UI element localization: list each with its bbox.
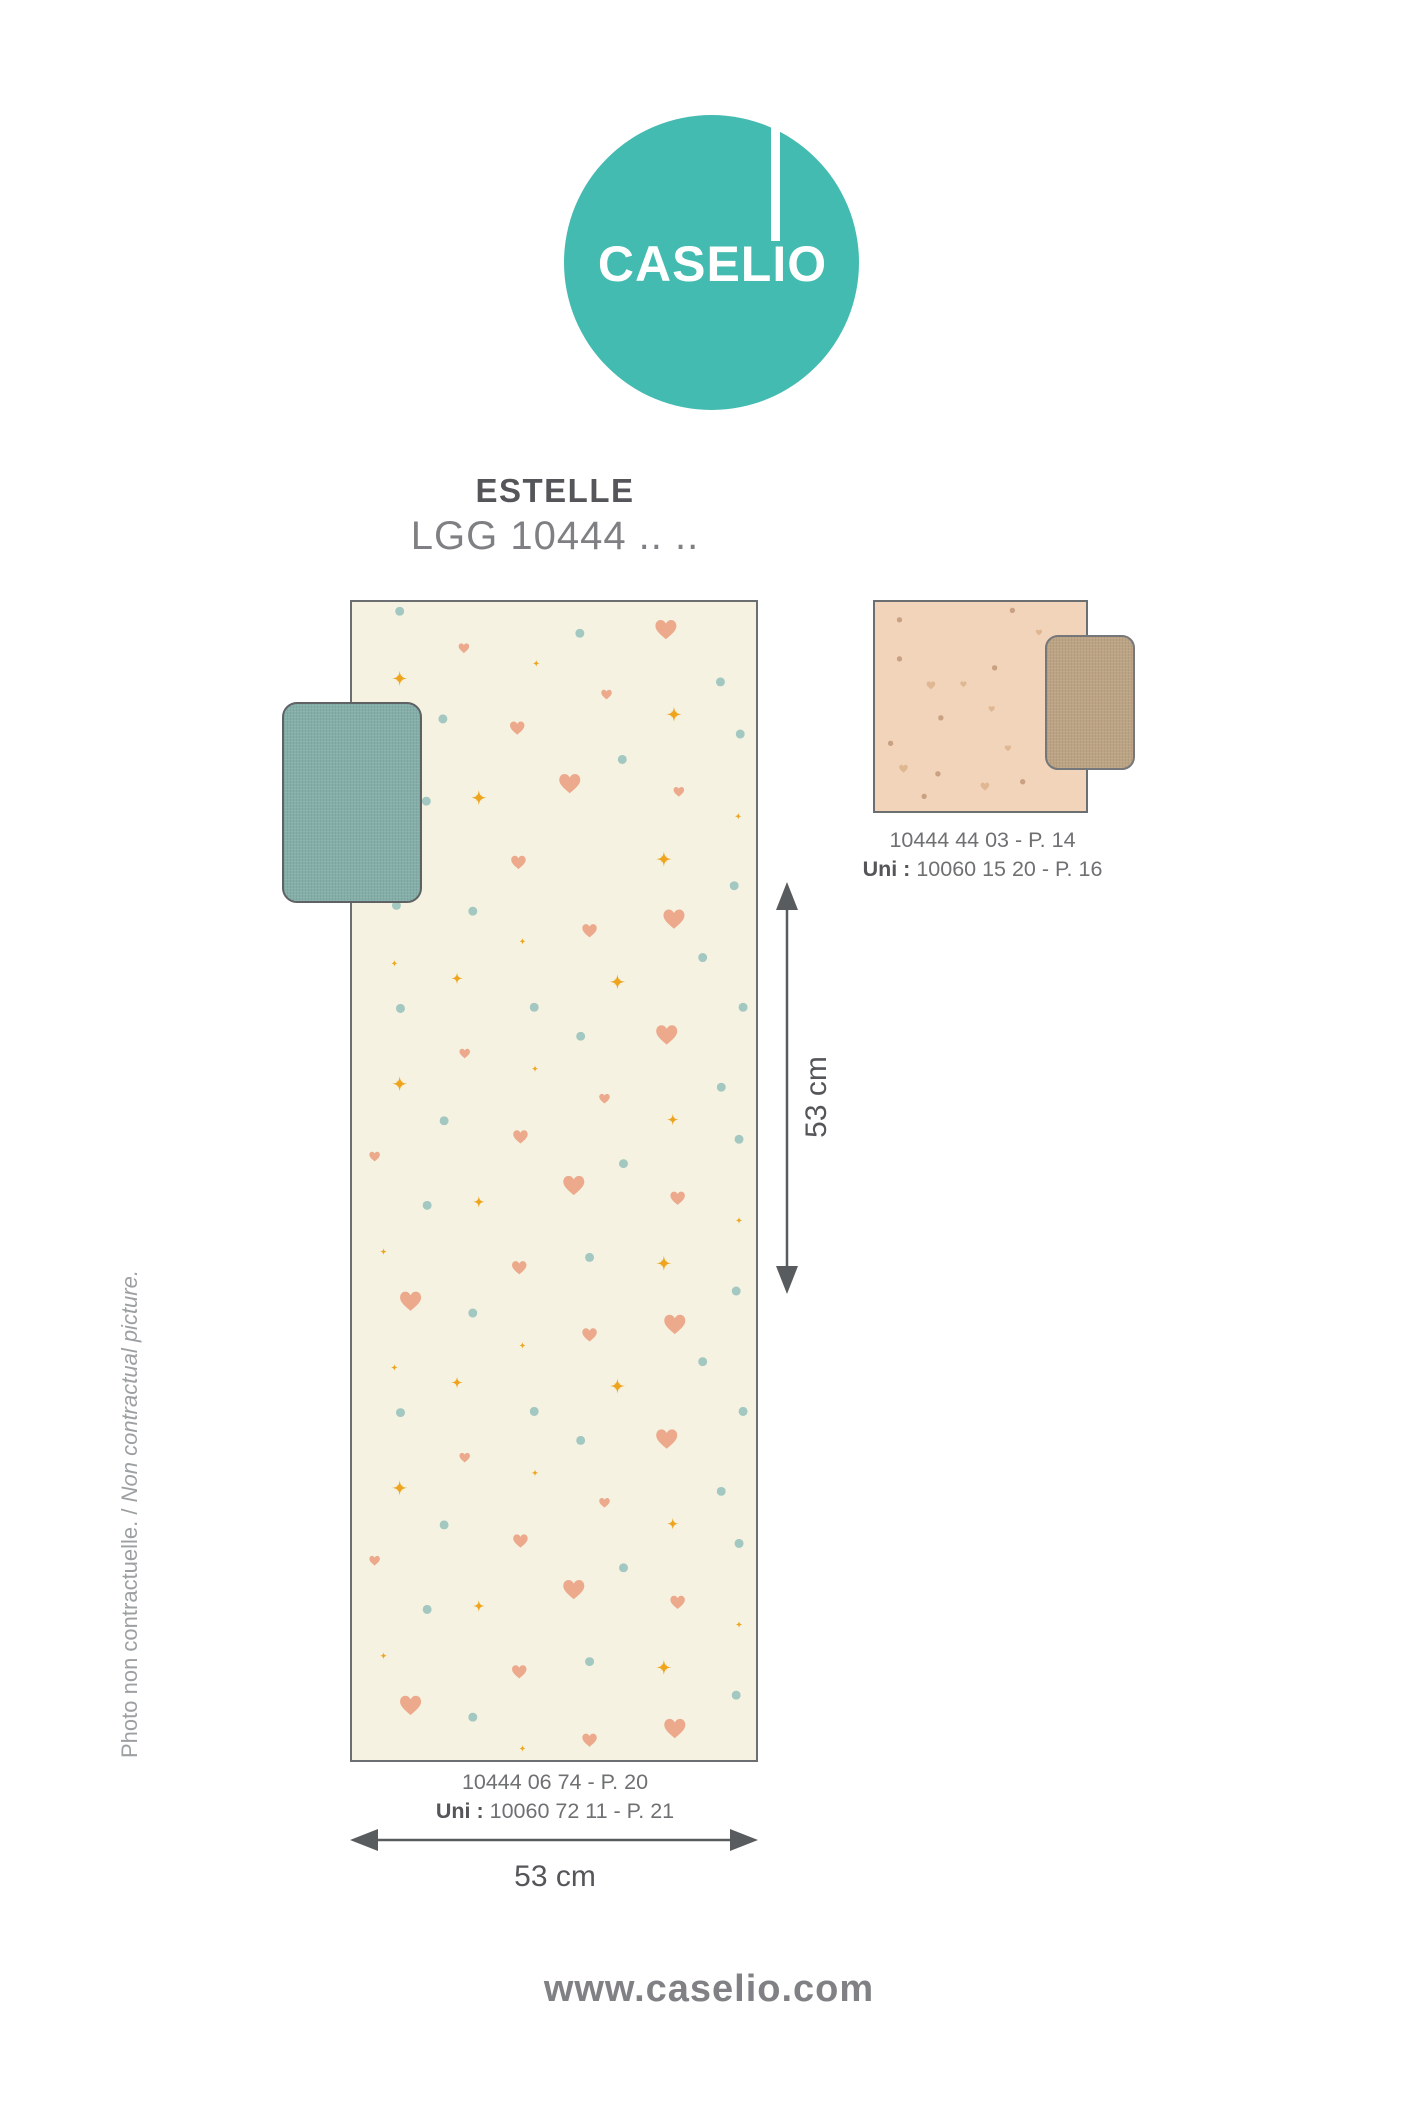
uni-value: 10060 72 11 - P. 21 (484, 1799, 674, 1823)
brand-wordmark: CASELIO (460, 239, 965, 289)
height-dimension-label: 53 cm (802, 1042, 832, 1152)
width-dimension-arrow (344, 1824, 764, 1856)
catalog-page: CASELIO ESTELLE LGG 10444 .. .. 10444 44… (0, 0, 1417, 2126)
uni-swatch-teal (282, 702, 422, 903)
note-fr: Photo non contractuelle. / (117, 1502, 142, 1758)
non-contractual-note: Photo non contractuelle. / Non contractu… (116, 1183, 144, 1758)
width-dimension-label: 53 cm (350, 1862, 760, 1892)
uni-code-line: Uni : 10060 15 20 - P. 16 (800, 855, 1165, 884)
logo-accent-bar (771, 120, 780, 241)
website-url: www.caselio.com (454, 1968, 964, 2011)
main-sample-codes: 10444 06 74 - P. 20 Uni : 10060 72 11 - … (370, 1768, 740, 1826)
uni-value: 10060 15 20 - P. 16 (910, 857, 1102, 881)
uni-label: Uni : (436, 1799, 484, 1823)
sample-code-line: 10444 06 74 - P. 20 (370, 1768, 740, 1797)
uni-label: Uni : (863, 857, 911, 881)
side-sample-codes: 10444 44 03 - P. 14 Uni : 10060 15 20 - … (800, 826, 1165, 884)
uni-code-line: Uni : 10060 72 11 - P. 21 (370, 1797, 740, 1826)
uni-swatch-tan (1045, 635, 1135, 770)
reference-code: LGG 10444 .. .. (330, 516, 780, 556)
collection-title: ESTELLE (350, 474, 760, 507)
sample-code-line: 10444 44 03 - P. 14 (800, 826, 1165, 855)
note-en: Non contractual picture. (117, 1270, 142, 1502)
